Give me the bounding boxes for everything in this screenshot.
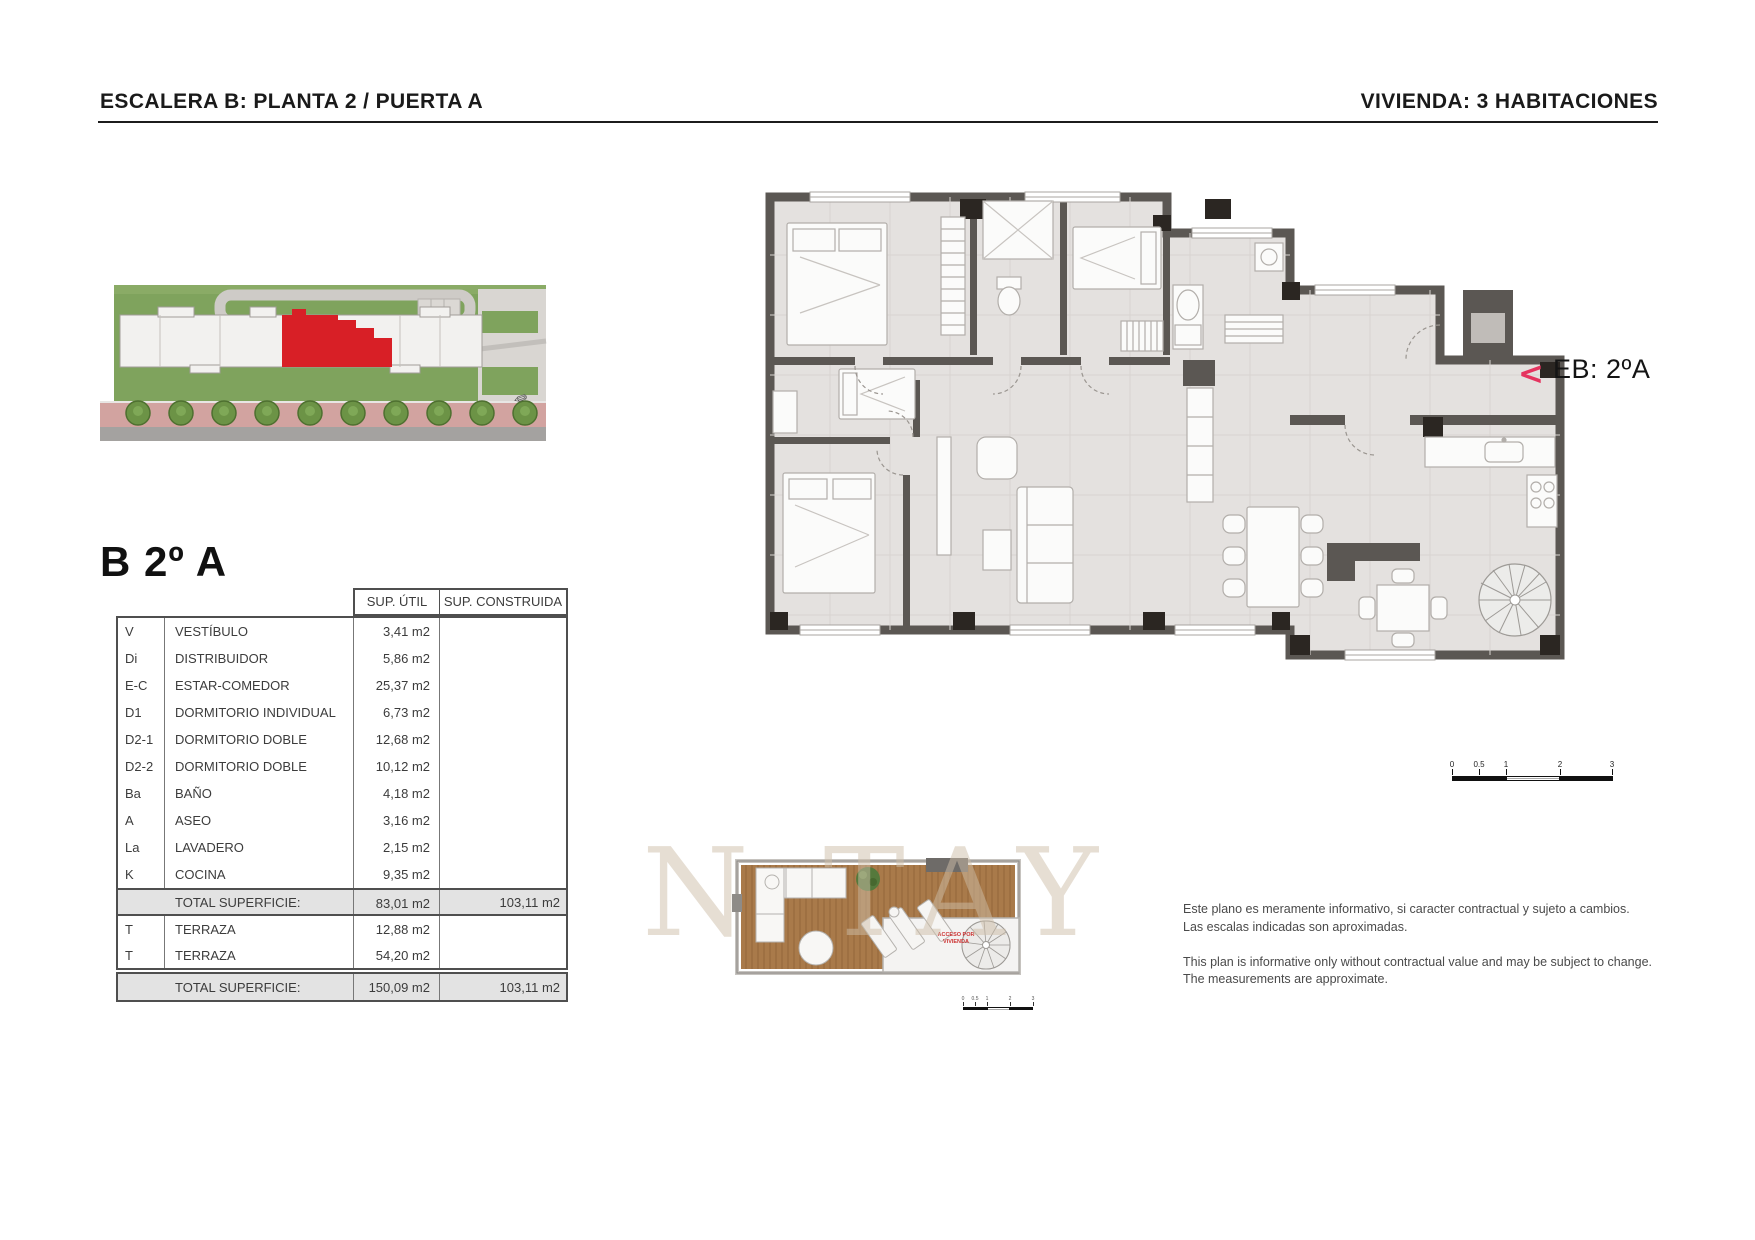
terrace-wall-stub <box>732 894 742 912</box>
site-road <box>100 427 546 441</box>
terrace-chimney <box>926 858 968 872</box>
room-code: K <box>118 861 165 888</box>
shower <box>983 201 1053 259</box>
room-name: DORMITORIO INDIVIDUAL <box>165 699 354 726</box>
room-code: La <box>118 834 165 861</box>
table-row: A ASEO 3,16 m2 <box>118 807 566 834</box>
svg-text:VIVIENDA: VIVIENDA <box>943 939 969 945</box>
scale-label: 0.5 <box>1473 760 1484 769</box>
table-row: T TERRAZA 12,88 m2 <box>118 916 566 942</box>
room-name: TERRAZA <box>165 916 354 942</box>
double-bed-2 <box>1073 227 1161 289</box>
room-name: TERRAZA <box>165 942 354 968</box>
room-name: BAÑO <box>165 780 354 807</box>
room-util: 4,18 m2 <box>354 780 440 807</box>
room-util: 25,37 m2 <box>354 672 440 699</box>
room-util: 54,20 m2 <box>354 942 440 968</box>
room-util: 3,16 m2 <box>354 807 440 834</box>
terrace-rows: T TERRAZA 12,88 m2 T TERRAZA 54,20 m2 <box>118 916 566 968</box>
table-row: K COCINA 9,35 m2 <box>118 861 566 888</box>
dresser <box>773 391 797 433</box>
table-row: D1 DORMITORIO INDIVIDUAL 6,73 m2 <box>118 699 566 726</box>
terrace-round-table <box>799 931 833 965</box>
room-code: T <box>118 916 165 942</box>
shelf-column <box>1187 388 1213 502</box>
room-rows: V VESTÍBULO 3,41 m2 Di DISTRIBUIDOR 5,86… <box>118 618 566 888</box>
col-header-util: SUP. ÚTIL <box>355 590 439 614</box>
spiral-staircase <box>1479 564 1551 636</box>
room-name: DISTRIBUIDOR <box>165 645 354 672</box>
room-util: 3,41 m2 <box>354 618 440 645</box>
disclaimer-es-line2: Las escalas indicadas son aproximadas. <box>1183 919 1683 937</box>
terrace-plant <box>856 867 880 891</box>
total-row-1: TOTAL SUPERFICIE: 83,01 m2 103,11 m2 <box>118 888 566 916</box>
toilet <box>997 277 1021 315</box>
svg-text:ACCESO POR: ACCESO POR <box>938 932 975 938</box>
total-row-2: TOTAL SUPERFICIE: 150,09 m2 103,11 m2 <box>116 972 568 1002</box>
dining-table <box>1223 507 1323 607</box>
disclaimer-es-line1: Este plano es meramente informativo, si … <box>1183 901 1683 919</box>
scale-label: 3 <box>1610 760 1614 769</box>
total-construida: 103,11 m2 <box>440 974 566 1001</box>
single-bed <box>839 369 915 419</box>
room-name: ASEO <box>165 807 354 834</box>
kitchen-counter <box>1425 437 1555 467</box>
room-util: 10,12 m2 <box>354 753 440 780</box>
table-row: E-C ESTAR-COMEDOR 25,37 m2 <box>118 672 566 699</box>
disclaimer: Este plano es meramente informativo, si … <box>1183 901 1683 989</box>
double-bed-1 <box>787 223 887 345</box>
room-code: Di <box>118 645 165 672</box>
room-name: LAVADERO <box>165 834 354 861</box>
sofa <box>1017 487 1073 603</box>
room-code: D2-2 <box>118 753 165 780</box>
header-rule <box>98 121 1658 123</box>
table-row: La LAVADERO 2,15 m2 <box>118 834 566 861</box>
room-util: 5,86 m2 <box>354 645 440 672</box>
stair-core-block <box>1463 290 1513 356</box>
table-row: V VESTÍBULO 3,41 m2 <box>118 618 566 645</box>
plan-sheet: ESCALERA B: PLANTA 2 / PUERTA A VIVIENDA… <box>0 0 1755 1240</box>
double-bed-3 <box>783 473 875 593</box>
coffee-table <box>983 530 1011 570</box>
scale-label: 1 <box>1504 760 1508 769</box>
room-name: DORMITORIO DOBLE <box>165 726 354 753</box>
total-util: 150,09 m2 <box>354 974 440 1000</box>
room-name: DORMITORIO DOBLE <box>165 753 354 780</box>
washing-machine <box>1255 243 1283 271</box>
total-construida: 103,11 m2 <box>440 889 566 916</box>
tv-unit <box>937 437 951 555</box>
room-code: V <box>118 618 165 645</box>
room-util: 2,15 m2 <box>354 834 440 861</box>
scale-label: 0 <box>1450 760 1454 769</box>
room-code: Ba <box>118 780 165 807</box>
room-util: 12,68 m2 <box>354 726 440 753</box>
terrace-plan: ACCESO POR VIVIENDA <box>728 856 1032 982</box>
room-name: ESTAR-COMEDOR <box>165 672 354 699</box>
col-header-construida: SUP. CONSTRUIDA <box>439 590 566 614</box>
total-label: TOTAL SUPERFICIE: <box>165 890 354 914</box>
room-name: COCINA <box>165 861 354 888</box>
scale-bar-mini: 0 0.5 1 2 3 <box>962 996 1034 1012</box>
unit-title: B 2º A <box>100 538 227 586</box>
site-plan <box>100 253 560 443</box>
location-chevron-icon: < <box>1518 356 1544 392</box>
room-code: D1 <box>118 699 165 726</box>
room-util: 12,88 m2 <box>354 916 440 942</box>
stove <box>1527 475 1557 527</box>
surface-table-body: V VESTÍBULO 3,41 m2 Di DISTRIBUIDOR 5,86… <box>116 616 568 970</box>
table-row: Di DISTRIBUIDOR 5,86 m2 <box>118 645 566 672</box>
room-name: VESTÍBULO <box>165 618 354 645</box>
room-code: A <box>118 807 165 834</box>
armchair <box>977 437 1017 479</box>
room-code: T <box>118 942 165 968</box>
table-row: T TERRAZA 54,20 m2 <box>118 942 566 968</box>
terrace-spiral-stair <box>962 921 1010 969</box>
scale-label: 2 <box>1558 760 1562 769</box>
disclaimer-en-line2: The measurements are approximate. <box>1183 971 1683 989</box>
surface-table-header: SUP. ÚTIL SUP. CONSTRUIDA <box>353 588 568 616</box>
room-util: 6,73 m2 <box>354 699 440 726</box>
header-left: ESCALERA B: PLANTA 2 / PUERTA A <box>100 90 483 114</box>
table-row: D2-2 DORMITORIO DOBLE 10,12 m2 <box>118 753 566 780</box>
total-util: 83,01 m2 <box>354 890 440 914</box>
wardrobe <box>941 217 965 335</box>
header-right: VIVIENDA: 3 HABITACIONES <box>1361 90 1658 114</box>
room-util: 9,35 m2 <box>354 861 440 888</box>
terrace-access-label: ACCESO POR VIVIENDA <box>938 932 975 945</box>
unit-location-label: EB: 2ºA <box>1553 354 1650 385</box>
room-code: D2-1 <box>118 726 165 753</box>
room-code: E-C <box>118 672 165 699</box>
total-label: TOTAL SUPERFICIE: <box>165 974 354 1000</box>
table-row: Ba BAÑO 4,18 m2 <box>118 780 566 807</box>
table-row: D2-1 DORMITORIO DOBLE 12,68 m2 <box>118 726 566 753</box>
disclaimer-en-line1: This plan is informative only without co… <box>1183 954 1683 972</box>
scale-bar: 0 0.5 1 2 3 <box>1451 760 1613 784</box>
floor-plan <box>755 185 1570 665</box>
